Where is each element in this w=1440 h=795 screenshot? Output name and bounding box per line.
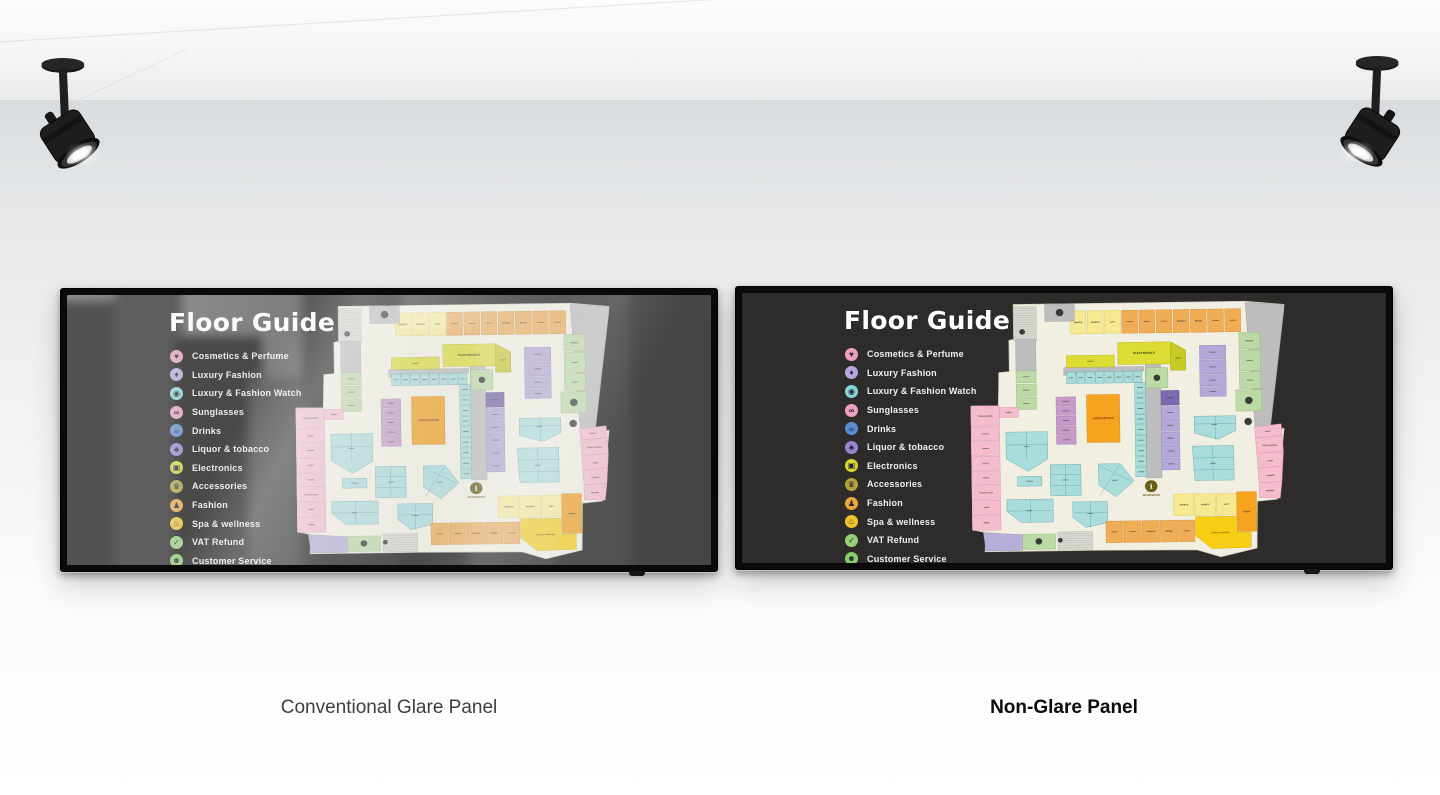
- store-label: ROOM: [1166, 531, 1173, 533]
- store-label: ROOM: [1195, 320, 1202, 322]
- luxury-fashion-icon: ♦: [170, 368, 183, 381]
- store-label-mark: [1135, 376, 1140, 377]
- display-sensor-nub: [629, 571, 645, 576]
- store-label-mark: [508, 532, 515, 533]
- store-label-mark: [462, 421, 468, 422]
- legend-item: ♣Liquor & tobacco: [845, 438, 977, 457]
- store-label-mark: [1229, 320, 1236, 321]
- ceiling-seam: [0, 0, 789, 43]
- store-label-mark: [1126, 321, 1133, 322]
- store-label-mark: [1063, 480, 1069, 481]
- legend-item: ♟Fashion: [170, 496, 302, 515]
- legend-item: ♛Accessories: [845, 475, 977, 494]
- store-label: ELECTRONICS: [1133, 351, 1155, 355]
- store-label: ROOM: [520, 322, 527, 324]
- store-label-mark: [1138, 471, 1144, 472]
- store-label-mark: [1137, 408, 1143, 409]
- store-label-mark: [983, 477, 990, 478]
- store-label-mark: [1087, 361, 1094, 362]
- legend-item-label: Fashion: [192, 500, 228, 510]
- map-store: [1016, 340, 1036, 371]
- store-label-mark: [982, 448, 989, 449]
- store-label: SPORTS: [502, 323, 511, 325]
- store-label-mark: [1209, 352, 1216, 353]
- store-label-mark: [463, 442, 469, 443]
- store-label-mark: [437, 482, 443, 483]
- store-label-mark: [1138, 429, 1144, 430]
- store-label-mark: [1097, 377, 1102, 378]
- store-label-mark: [1023, 376, 1030, 377]
- legend-item-label: Sunglasses: [867, 405, 919, 415]
- store-label-mark: [308, 479, 315, 480]
- store-label-mark: [348, 392, 355, 393]
- store-label-mark: [1063, 420, 1070, 421]
- legend-item-label: Cosmetics & Perfume: [867, 349, 964, 359]
- electronics-icon: ▣: [170, 461, 183, 474]
- store-label-mark: [1069, 377, 1074, 378]
- store-label: SPORTS: [1146, 531, 1155, 533]
- store-label-mark: [388, 422, 395, 423]
- store-label-mark: [1137, 419, 1143, 420]
- map-zone: [1256, 436, 1284, 454]
- display-conventional-glare: Floor Guide ♥Cosmetics & Perfume♦Luxury …: [60, 288, 718, 572]
- legend-item: ♨Spa & wellness: [845, 512, 977, 531]
- store-label: SPORTS: [1177, 321, 1186, 323]
- store-label: SPORTS: [1266, 475, 1275, 477]
- store-label-mark: [492, 427, 499, 428]
- map-store: [341, 342, 361, 373]
- map-store: [972, 486, 1001, 500]
- store-label: ROOM: [491, 533, 498, 535]
- map-store: [971, 406, 1000, 427]
- luxury-fashion-watch-icon: ◉: [170, 387, 183, 400]
- legend-item: ♥Cosmetics & Perfume: [845, 345, 977, 364]
- store-label-mark: [454, 533, 461, 534]
- store-label-mark: [1062, 401, 1069, 402]
- store-label: SPORTS: [1074, 322, 1083, 324]
- screen-conventional-glare: Floor Guide ♥Cosmetics & Perfume♦Luxury …: [67, 295, 711, 565]
- store-label-mark: [1063, 430, 1070, 431]
- store-label-mark: [500, 359, 506, 360]
- store-label-mark: [1210, 391, 1217, 392]
- store-label-mark: [1210, 380, 1217, 381]
- store-label-mark: [1161, 321, 1168, 322]
- store-label: SPORTS: [1245, 340, 1254, 342]
- store-label-mark: [1111, 531, 1118, 532]
- legend-item-label: Accessories: [192, 481, 247, 491]
- store-label: SPORTS: [570, 342, 579, 344]
- legend-item: ☻Customer Service: [845, 550, 977, 563]
- map-zone: [583, 468, 608, 485]
- legend-item: ☕Drinks: [845, 419, 977, 438]
- store-label-mark: [554, 322, 561, 323]
- store-label-mark: [1024, 446, 1030, 447]
- store-label: TAKIDA WARRIOR: [1211, 532, 1230, 534]
- legend-item: ◉Luxury & Fashion Watch: [170, 384, 302, 403]
- legend-item: ♥Cosmetics & Perfume: [170, 347, 302, 366]
- legend-item-label: Fashion: [867, 498, 903, 508]
- store-label-mark: [534, 368, 541, 369]
- store-label-mark: [571, 362, 578, 363]
- store-label-mark: [486, 323, 493, 324]
- legend-item: ☕Drinks: [170, 421, 302, 440]
- store-label-mark: [1210, 463, 1216, 464]
- floor-guide-content: Floor Guide ♥Cosmetics & Perfume♦Luxury …: [742, 293, 1386, 563]
- store-label-mark: [1078, 377, 1083, 378]
- store-label-mark: [403, 379, 408, 380]
- legend-item: ◉Luxury & Fashion Watch: [845, 382, 977, 401]
- store-label-mark: [1112, 480, 1118, 481]
- legend-item-label: Electronics: [192, 463, 243, 473]
- floor-map: TAKIDA WARRIORLUXESPORTSWOMENTAKIDA WARR…: [969, 300, 1288, 561]
- electronics-icon: ▣: [845, 459, 858, 472]
- store-label-mark: [462, 399, 468, 400]
- display-non-glare: Floor Guide ♥Cosmetics & Perfume♦Luxury …: [735, 286, 1393, 570]
- store-label-mark: [1138, 440, 1144, 441]
- map-zone: [1257, 451, 1284, 468]
- store-label-mark: [307, 435, 314, 436]
- legend-item: ♛Accessories: [170, 477, 302, 496]
- floor-guide-legend: ♥Cosmetics & Perfume♦Luxury Fashion◉Luxu…: [170, 347, 302, 565]
- legend-item: ♦Luxury Fashion: [170, 366, 302, 385]
- drinks-icon: ☕: [845, 422, 858, 435]
- store-label-mark: [436, 533, 443, 534]
- sunglasses-icon: ∞: [845, 404, 858, 417]
- store-label: SPORTS: [591, 477, 600, 479]
- store-label-mark: [460, 378, 465, 379]
- legend-item: ♣Liquor & tobacco: [170, 440, 302, 459]
- vat-refund-icon: ✓: [845, 534, 858, 547]
- map-store: [297, 488, 326, 502]
- store-label-mark: [348, 405, 355, 406]
- store-label-mark: [1167, 425, 1174, 426]
- store-label-mark: [492, 453, 499, 454]
- information-icon-glyph: i: [475, 484, 478, 493]
- map-store: [296, 408, 325, 429]
- legend-item: ∞Sunglasses: [845, 401, 977, 420]
- information-label: INFORMATION: [1143, 494, 1161, 497]
- store-label-mark: [432, 379, 437, 380]
- store-label-mark: [1138, 461, 1144, 462]
- legend-item: ✓VAT Refund: [845, 531, 977, 550]
- store-label: MART: [1006, 412, 1013, 414]
- store-label-mark: [1143, 321, 1150, 322]
- store-label-mark: [535, 382, 542, 383]
- store-label-mark: [388, 432, 395, 433]
- store-label-mark: [388, 412, 395, 413]
- legend-item-label: Spa & wellness: [192, 519, 260, 529]
- store-label-mark: [394, 379, 399, 380]
- caption-conventional-glare-panel: Conventional Glare Panel: [60, 697, 718, 719]
- fashion-icon: ♟: [845, 497, 858, 510]
- store-label-mark: [572, 382, 579, 383]
- store-label-mark: [307, 465, 314, 466]
- store-label-mark: [492, 399, 499, 400]
- store-label-mark: [422, 379, 427, 380]
- information-label: INFORMATION: [468, 496, 486, 499]
- cosmetics-perfume-icon: ♥: [845, 348, 858, 361]
- escalator: [1013, 306, 1036, 340]
- legend-item-label: Drinks: [867, 424, 896, 434]
- store-label-mark: [1023, 403, 1030, 404]
- store-label-mark: [1088, 377, 1093, 378]
- store-label: MART: [331, 414, 338, 416]
- store-label-mark: [451, 379, 456, 380]
- store-label-mark: [590, 433, 596, 434]
- legend-item-label: VAT Refund: [192, 537, 244, 547]
- store-label-mark: [352, 512, 358, 513]
- store-label-mark: [1137, 397, 1143, 398]
- legend-item-label: Luxury Fashion: [192, 370, 262, 380]
- store-label: SPORTS: [399, 324, 408, 326]
- store-label-mark: [1138, 450, 1144, 451]
- store-label-mark: [1167, 438, 1174, 439]
- luxury-fashion-icon: ♦: [845, 366, 858, 379]
- store-label: ROOM: [568, 513, 575, 515]
- legend-item: ∞Sunglasses: [170, 403, 302, 422]
- legend-item-label: Liquor & tobacco: [192, 444, 269, 454]
- legend-item-label: Customer Service: [192, 556, 272, 565]
- display-sensor-nub: [1304, 569, 1320, 574]
- legend-item: ♦Luxury Fashion: [845, 364, 977, 383]
- store-label-mark: [451, 323, 458, 324]
- map-zone: [1258, 466, 1283, 483]
- ceiling-spotlight-left: [18, 56, 130, 188]
- store-label-mark: [463, 431, 469, 432]
- store-label-mark: [388, 482, 394, 483]
- legend-item-label: Luxury & Fashion Watch: [192, 388, 302, 398]
- spa-wellness-icon: ♨: [170, 517, 183, 530]
- store-label-mark: [388, 441, 395, 442]
- map-zone: [983, 532, 1022, 551]
- drinks-icon: ☕: [170, 424, 183, 437]
- map-zone: [581, 438, 609, 456]
- legend-item-label: Accessories: [867, 479, 922, 489]
- legend-item-label: VAT Refund: [867, 535, 919, 545]
- store-label-mark: [492, 440, 499, 441]
- store-label: WOMEN: [591, 492, 600, 494]
- store-label: SPORTS: [471, 533, 480, 535]
- store-label-mark: [535, 393, 542, 394]
- legend-item: ▣Electronics: [170, 459, 302, 478]
- store-label-mark: [1063, 410, 1070, 411]
- legend-item-label: Spa & wellness: [867, 517, 935, 527]
- floor-guide-content: Floor Guide ♥Cosmetics & Perfume♦Luxury …: [67, 295, 711, 565]
- store-label-mark: [387, 403, 394, 404]
- store-label-mark: [462, 410, 468, 411]
- store-label: LARA: [984, 507, 990, 509]
- escalator: [338, 308, 361, 342]
- store-label-mark: [535, 465, 541, 466]
- store-label-mark: [1116, 377, 1121, 378]
- store-label-mark: [1183, 530, 1190, 531]
- cosmetics-perfume-icon: ♥: [170, 350, 183, 363]
- store-label-mark: [1027, 510, 1033, 511]
- store-label-mark: [463, 463, 469, 464]
- legend-item-label: Sunglasses: [192, 407, 244, 417]
- store-label-mark: [536, 426, 542, 427]
- store-label-mark: [1212, 320, 1219, 321]
- liquor-tobacco-icon: ♣: [170, 443, 183, 456]
- store-label-mark: [1107, 377, 1112, 378]
- information-icon-glyph: i: [1150, 482, 1153, 491]
- ceiling: [0, 0, 1440, 100]
- map-zone: [308, 534, 347, 553]
- store-label-mark: [1265, 431, 1271, 432]
- legend-item-label: Liquor & tobacco: [867, 442, 944, 452]
- store-label-mark: [493, 465, 500, 466]
- legend-item-label: Electronics: [867, 461, 918, 471]
- store-label-mark: [349, 448, 355, 449]
- store-label: LIFT: [1110, 322, 1115, 324]
- map-zone: [582, 453, 609, 470]
- store-label-mark: [537, 322, 544, 323]
- store-label-mark: [1126, 377, 1131, 378]
- store-label: SPORTS: [1201, 504, 1210, 506]
- legend-item: ☻Customer Service: [170, 552, 302, 565]
- liquor-tobacco-icon: ♣: [845, 441, 858, 454]
- store-label-mark: [1167, 397, 1174, 398]
- accessories-icon: ♛: [170, 480, 183, 493]
- store-label-mark: [982, 433, 989, 434]
- legend-item: ✓VAT Refund: [170, 533, 302, 552]
- store-label: LUXE: [1268, 460, 1274, 462]
- customer-service-icon: ☻: [170, 554, 183, 565]
- store-label: PUMA: [984, 522, 991, 524]
- store-label: SPORTS: [1091, 322, 1100, 324]
- caption-non-glare-panel: Non-Glare Panel: [735, 697, 1393, 719]
- customer-service-icon: ☻: [845, 552, 858, 563]
- store-label-mark: [1026, 481, 1033, 482]
- store-label-mark: [463, 473, 469, 474]
- screen-non-glare: Floor Guide ♥Cosmetics & Perfume♦Luxury …: [742, 293, 1386, 563]
- store-label: LIFT: [1224, 504, 1229, 506]
- store-label-mark: [412, 515, 418, 516]
- store-label: SPORTS: [416, 324, 425, 326]
- store-label-mark: [351, 483, 358, 484]
- store-label-mark: [412, 363, 419, 364]
- legend-item-label: Luxury Fashion: [867, 368, 937, 378]
- store-label-mark: [462, 389, 468, 390]
- store-label-mark: [1063, 439, 1070, 440]
- store-label-mark: [1129, 531, 1136, 532]
- store-label-mark: [468, 323, 475, 324]
- legend-item: ▣Electronics: [845, 457, 977, 476]
- spa-wellness-icon: ♨: [845, 515, 858, 528]
- store-label-mark: [441, 379, 446, 380]
- legend-item-label: Drinks: [192, 426, 221, 436]
- store-label: CONVENTION: [418, 418, 440, 422]
- legend-item-label: Customer Service: [867, 554, 947, 563]
- store-label-mark: [982, 463, 989, 464]
- store-label-mark: [534, 354, 541, 355]
- store-label: PUMA: [309, 524, 316, 526]
- store-label-mark: [1175, 357, 1181, 358]
- store-label: LIFT: [435, 324, 440, 326]
- store-label-mark: [492, 414, 499, 415]
- store-label-mark: [413, 379, 418, 380]
- store-label: ELECTRONICS: [458, 353, 480, 357]
- legend-item-label: Luxury & Fashion Watch: [867, 386, 977, 396]
- store-label: ROOM: [1243, 511, 1250, 513]
- store-label-mark: [1168, 463, 1175, 464]
- store-label-mark: [1167, 451, 1174, 452]
- accessories-icon: ♛: [845, 478, 858, 491]
- vat-refund-icon: ✓: [170, 536, 183, 549]
- legend-item: ♨Spa & wellness: [170, 514, 302, 533]
- store-label-mark: [1137, 387, 1143, 388]
- legend-item: ♟Fashion: [845, 494, 977, 513]
- store-label-mark: [1209, 366, 1216, 367]
- store-label-mark: [1167, 412, 1174, 413]
- store-label-mark: [1247, 380, 1254, 381]
- store-label-mark: [348, 378, 355, 379]
- store-label: SPORTS: [504, 506, 513, 508]
- floor-map: TAKIDA WARRIORLUXESPORTSWOMENTAKIDA WARR…: [294, 302, 613, 563]
- store-label: TAKIDA WARRIOR: [536, 534, 555, 536]
- store-label: LUXE: [593, 462, 599, 464]
- store-label: CONVENTION: [1093, 416, 1115, 420]
- luxury-fashion-watch-icon: ◉: [845, 385, 858, 398]
- floor-guide-legend: ♥Cosmetics & Perfume♦Luxury Fashion◉Luxu…: [845, 345, 977, 563]
- store-label: SPORTS: [526, 506, 535, 508]
- store-label: LARA: [309, 509, 315, 511]
- store-label-mark: [307, 450, 314, 451]
- store-label-mark: [1246, 360, 1253, 361]
- legend-item-label: Cosmetics & Perfume: [192, 351, 289, 361]
- store-label-mark: [463, 452, 469, 453]
- store-label-mark: [1087, 513, 1093, 514]
- sunglasses-icon: ∞: [170, 406, 183, 419]
- store-label-mark: [1023, 390, 1030, 391]
- store-label: WOMEN: [1266, 490, 1275, 492]
- store-label: SPORTS: [1179, 504, 1188, 506]
- store-label: LIFT: [549, 506, 554, 508]
- ceiling-spotlight-right: [1310, 54, 1422, 186]
- store-label-mark: [1211, 424, 1217, 425]
- fashion-icon: ♟: [170, 499, 183, 512]
